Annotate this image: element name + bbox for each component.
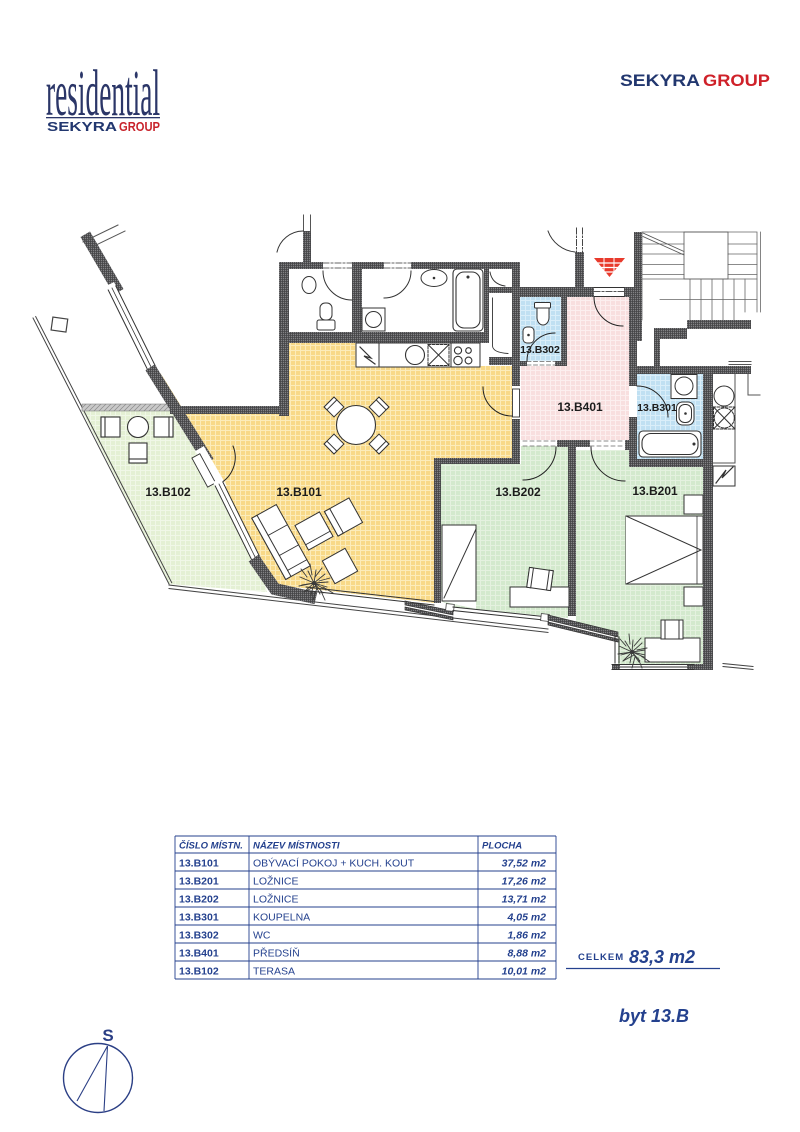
- svg-text:CELKEM: CELKEM: [578, 952, 624, 963]
- svg-text:13.B102: 13.B102: [179, 966, 219, 978]
- svg-text:4,05 m2: 4,05 m2: [506, 912, 546, 924]
- svg-text:1,86 m2: 1,86 m2: [507, 930, 546, 942]
- svg-text:13.B301: 13.B301: [179, 912, 219, 924]
- svg-text:13,71 m2: 13,71 m2: [502, 894, 547, 906]
- svg-text:PŘEDSÍŇ: PŘEDSÍŇ: [253, 947, 300, 960]
- svg-text:GROUP: GROUP: [703, 72, 770, 90]
- svg-text:S: S: [102, 1026, 113, 1045]
- svg-text:13.B101: 13.B101: [276, 485, 322, 499]
- svg-text:SEKYRA: SEKYRA: [620, 72, 700, 90]
- svg-text:LOŽNICE: LOŽNICE: [253, 893, 299, 906]
- svg-text:13.B101: 13.B101: [179, 858, 219, 870]
- svg-text:8,88 m2: 8,88 m2: [507, 948, 546, 960]
- svg-text:KOUPELNA: KOUPELNA: [253, 912, 310, 924]
- svg-text:13.B202: 13.B202: [495, 485, 541, 499]
- svg-text:PLOCHA: PLOCHA: [482, 841, 522, 852]
- svg-text:37,52 m2: 37,52 m2: [502, 858, 547, 870]
- svg-text:OBÝVACÍ POKOJ + KUCH. KOUT: OBÝVACÍ POKOJ + KUCH. KOUT: [253, 857, 415, 870]
- svg-text:NÁZEV MÍSTNOSTI: NÁZEV MÍSTNOSTI: [253, 841, 340, 852]
- svg-text:WC: WC: [253, 930, 271, 942]
- svg-text:13.B302: 13.B302: [179, 930, 219, 942]
- svg-text:13.B202: 13.B202: [179, 894, 219, 906]
- svg-text:TERASA: TERASA: [253, 966, 295, 978]
- svg-text:13.B401: 13.B401: [179, 948, 219, 960]
- svg-text:13.B102: 13.B102: [145, 485, 191, 499]
- svg-text:83,3 m2: 83,3 m2: [629, 947, 695, 967]
- svg-text:10,01 m2: 10,01 m2: [502, 966, 547, 978]
- svg-text:13.B301: 13.B301: [637, 402, 677, 414]
- svg-text:13.B201: 13.B201: [632, 484, 678, 498]
- svg-text:LOŽNICE: LOŽNICE: [253, 875, 299, 888]
- svg-text:13.B201: 13.B201: [179, 876, 219, 888]
- svg-text:17,26 m2: 17,26 m2: [502, 876, 547, 888]
- svg-text:GROUP: GROUP: [119, 119, 160, 134]
- svg-text:SEKYRA: SEKYRA: [47, 119, 118, 134]
- svg-text:13.B302: 13.B302: [520, 344, 560, 356]
- svg-text:ČÍSLO MÍSTN.: ČÍSLO MÍSTN.: [179, 840, 243, 852]
- svg-text:13.B401: 13.B401: [557, 400, 603, 414]
- svg-text:byt 13.B: byt 13.B: [619, 1006, 689, 1026]
